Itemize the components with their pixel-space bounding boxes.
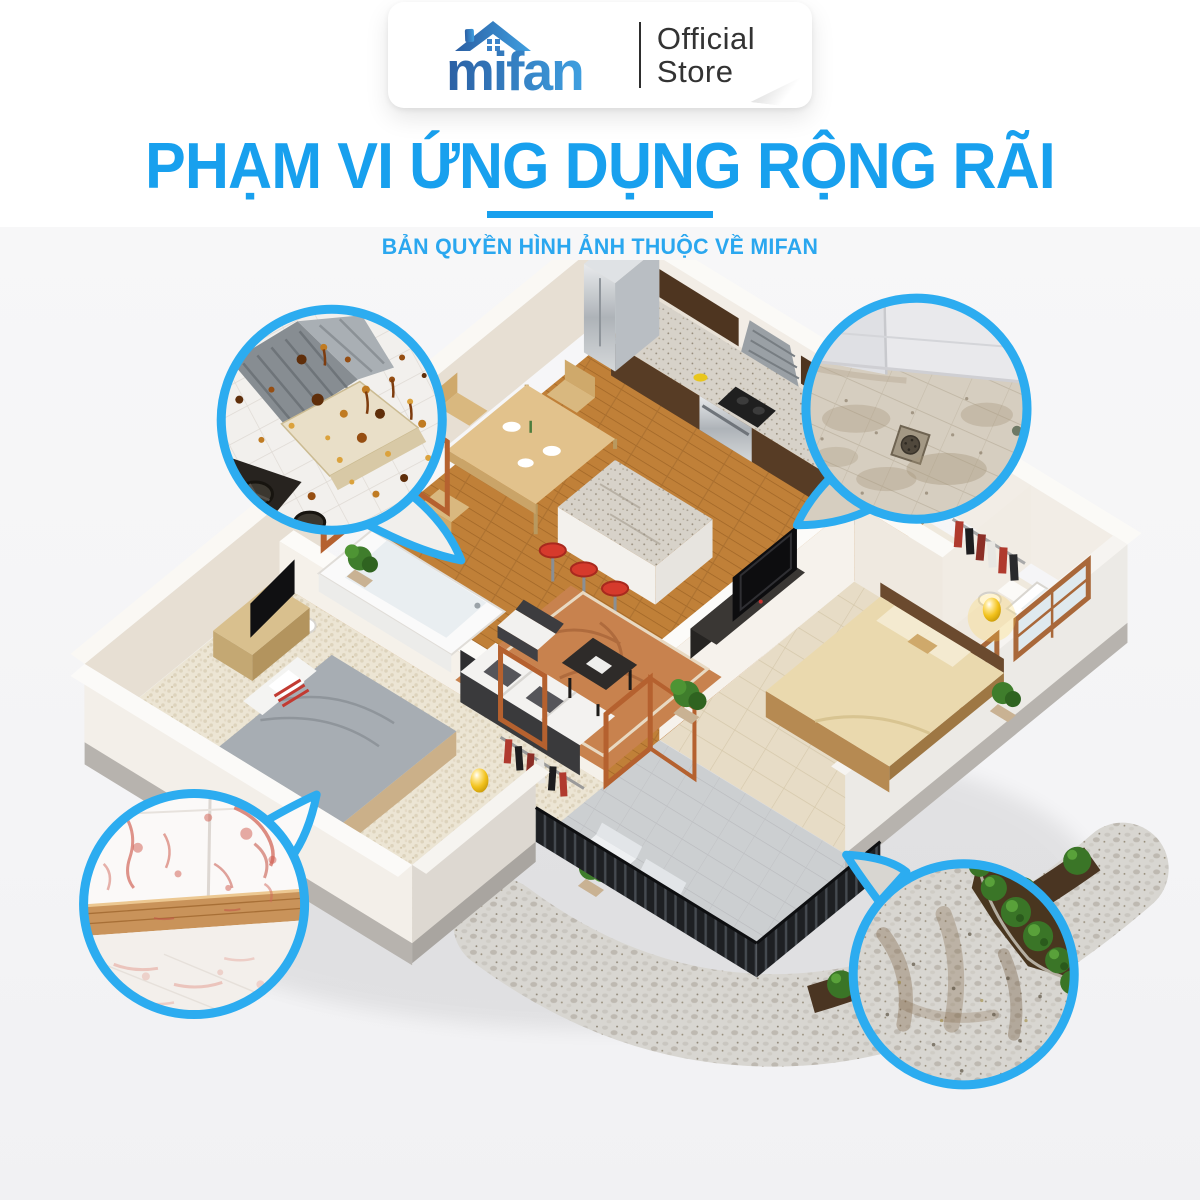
floorplan-scene [0, 260, 1200, 1200]
store-badge: mifan Official Store [388, 2, 812, 108]
page-curl-decoration [750, 72, 799, 107]
official-line: Official [657, 22, 755, 55]
official-store-label: Official Store [639, 22, 755, 89]
logo-wordmark: mifan [446, 40, 583, 97]
gold-lamp-master [983, 597, 1001, 621]
content-zone: BẢN QUYỀN HÌNH ẢNH THUỘC VỀ MIFAN [0, 227, 1200, 1200]
floorplan-photo [0, 260, 1200, 1200]
gold-lamp-bed2a [470, 768, 488, 792]
title-underline [487, 211, 713, 218]
copyright-subtitle: BẢN QUYỀN HÌNH ẢNH THUỘC VỀ MIFAN [382, 234, 818, 260]
page-title: PHẠM VI ỨNG DỤNG RỘNG RÃI [145, 132, 1055, 200]
store-line: Store [657, 55, 755, 88]
mifan-logo: mifan [445, 13, 623, 97]
product-image: mifan Official Store PHẠM VI ỨNG DỤNG RỘ… [0, 0, 1200, 1200]
